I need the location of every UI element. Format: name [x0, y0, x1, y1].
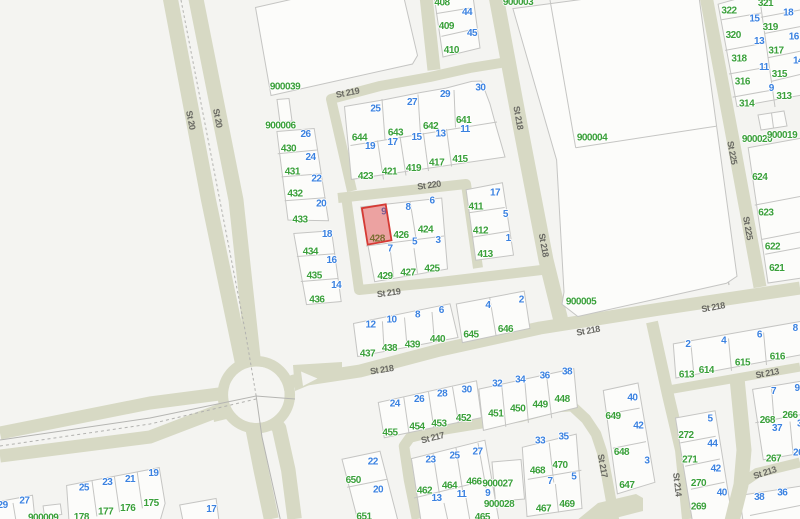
svg-text:11: 11: [759, 62, 770, 73]
svg-text:437: 437: [360, 349, 376, 360]
svg-text:40: 40: [627, 392, 638, 403]
svg-text:314: 314: [739, 99, 755, 110]
svg-text:18: 18: [783, 8, 794, 19]
svg-text:645: 645: [463, 330, 479, 341]
svg-text:25: 25: [79, 483, 90, 494]
svg-text:32: 32: [492, 379, 503, 390]
svg-text:175: 175: [144, 498, 160, 509]
svg-text:423: 423: [358, 171, 374, 182]
svg-text:21: 21: [125, 474, 136, 485]
svg-text:26: 26: [300, 129, 311, 140]
svg-text:320: 320: [726, 30, 742, 41]
svg-text:38: 38: [754, 492, 765, 503]
svg-text:23: 23: [425, 455, 436, 466]
svg-text:469: 469: [559, 499, 575, 510]
svg-text:26: 26: [793, 447, 800, 458]
svg-text:29: 29: [440, 89, 451, 100]
svg-text:35: 35: [558, 431, 569, 442]
svg-text:900003: 900003: [503, 0, 534, 8]
svg-text:450: 450: [510, 404, 526, 415]
svg-text:42: 42: [633, 421, 644, 432]
svg-text:42: 42: [711, 463, 722, 474]
svg-text:270: 270: [691, 478, 707, 489]
svg-text:621: 621: [769, 263, 785, 274]
svg-text:411: 411: [468, 201, 484, 212]
svg-text:27: 27: [19, 496, 30, 507]
svg-text:27: 27: [472, 446, 483, 457]
svg-text:322: 322: [721, 5, 737, 16]
svg-text:37: 37: [772, 423, 783, 434]
svg-text:900028: 900028: [484, 499, 515, 510]
svg-text:434: 434: [303, 246, 319, 257]
svg-text:415: 415: [452, 154, 468, 165]
svg-text:616: 616: [770, 352, 786, 363]
svg-text:448: 448: [555, 394, 571, 405]
svg-text:900039: 900039: [270, 82, 301, 93]
svg-text:34: 34: [515, 375, 526, 386]
svg-text:449: 449: [533, 399, 549, 410]
svg-text:20: 20: [373, 484, 384, 495]
svg-text:424: 424: [418, 225, 434, 236]
svg-text:178: 178: [74, 512, 90, 519]
svg-text:13: 13: [435, 129, 446, 140]
svg-text:455: 455: [382, 428, 398, 439]
svg-text:429: 429: [377, 271, 393, 282]
svg-text:176: 176: [120, 503, 136, 514]
svg-text:19: 19: [148, 468, 159, 479]
svg-text:16: 16: [789, 31, 800, 42]
svg-text:267: 267: [766, 453, 782, 464]
svg-text:646: 646: [498, 324, 514, 335]
svg-text:318: 318: [731, 53, 747, 64]
svg-text:10: 10: [386, 315, 397, 326]
svg-text:33: 33: [535, 436, 546, 447]
svg-text:900006: 900006: [265, 121, 296, 132]
svg-text:25: 25: [370, 104, 381, 115]
svg-text:22: 22: [311, 174, 322, 185]
svg-text:30: 30: [462, 385, 473, 396]
svg-text:313: 313: [776, 91, 792, 102]
svg-text:615: 615: [735, 357, 751, 368]
svg-text:36: 36: [540, 370, 551, 381]
svg-text:466: 466: [466, 477, 482, 488]
svg-text:44: 44: [462, 7, 473, 18]
svg-text:419: 419: [406, 163, 422, 174]
svg-text:28: 28: [437, 389, 448, 400]
svg-text:453: 453: [431, 418, 447, 429]
svg-text:14: 14: [331, 280, 342, 291]
svg-text:20: 20: [316, 198, 327, 209]
svg-text:431: 431: [285, 166, 301, 177]
svg-text:470: 470: [552, 460, 568, 471]
svg-text:315: 315: [772, 69, 788, 80]
svg-text:317: 317: [768, 45, 784, 56]
svg-text:440: 440: [430, 334, 446, 345]
svg-text:624: 624: [752, 172, 768, 183]
svg-text:22: 22: [368, 456, 379, 467]
svg-text:29: 29: [0, 500, 9, 511]
svg-text:23: 23: [102, 477, 113, 488]
svg-text:900004: 900004: [577, 133, 608, 144]
svg-text:613: 613: [679, 370, 695, 381]
svg-text:17: 17: [387, 137, 398, 148]
svg-text:12: 12: [365, 320, 376, 331]
svg-text:438: 438: [382, 343, 398, 354]
svg-text:622: 622: [765, 242, 781, 253]
svg-text:426: 426: [393, 230, 409, 241]
svg-text:468: 468: [530, 466, 546, 477]
svg-text:614: 614: [699, 365, 715, 376]
svg-text:272: 272: [678, 430, 694, 441]
svg-text:436: 436: [309, 294, 325, 305]
svg-text:36: 36: [777, 487, 788, 498]
svg-text:409: 409: [439, 21, 455, 32]
svg-text:408: 408: [434, 0, 450, 9]
svg-text:14: 14: [793, 55, 800, 66]
svg-text:321: 321: [758, 0, 774, 9]
svg-text:651: 651: [356, 512, 372, 519]
svg-text:439: 439: [405, 340, 421, 351]
svg-text:900009: 900009: [28, 513, 59, 519]
svg-text:19: 19: [365, 141, 376, 152]
svg-text:25: 25: [449, 451, 460, 462]
svg-text:452: 452: [456, 413, 472, 424]
svg-text:410: 410: [444, 45, 460, 56]
svg-text:11: 11: [457, 489, 468, 500]
svg-text:451: 451: [488, 408, 504, 419]
svg-text:432: 432: [287, 189, 303, 200]
svg-text:465: 465: [475, 512, 491, 519]
svg-text:413: 413: [478, 249, 494, 260]
svg-text:45: 45: [467, 28, 478, 39]
svg-text:647: 647: [619, 480, 635, 491]
svg-text:38: 38: [562, 366, 573, 377]
svg-text:421: 421: [382, 167, 398, 178]
svg-text:16: 16: [326, 255, 337, 266]
svg-text:9: 9: [794, 383, 800, 394]
svg-text:454: 454: [409, 422, 425, 433]
svg-text:464: 464: [442, 481, 458, 492]
svg-text:430: 430: [281, 143, 297, 154]
svg-text:13: 13: [431, 493, 442, 504]
svg-text:316: 316: [735, 77, 751, 88]
svg-text:623: 623: [758, 208, 774, 219]
svg-text:425: 425: [424, 263, 440, 274]
svg-text:24: 24: [305, 152, 316, 163]
svg-text:427: 427: [400, 268, 416, 279]
svg-text:13: 13: [754, 36, 765, 47]
svg-text:648: 648: [614, 447, 630, 458]
svg-text:11: 11: [460, 124, 471, 135]
svg-text:900019: 900019: [767, 130, 798, 141]
svg-text:269: 269: [691, 501, 707, 512]
svg-text:15: 15: [749, 14, 760, 25]
svg-text:24: 24: [390, 399, 401, 410]
svg-text:27: 27: [407, 97, 418, 108]
svg-text:17: 17: [206, 504, 217, 515]
svg-text:30: 30: [475, 83, 486, 94]
svg-text:26: 26: [414, 394, 425, 405]
svg-text:649: 649: [605, 411, 621, 422]
svg-text:17: 17: [490, 188, 501, 199]
svg-text:412: 412: [473, 225, 489, 236]
svg-text:44: 44: [707, 439, 718, 450]
svg-text:435: 435: [307, 271, 323, 282]
svg-text:467: 467: [536, 504, 552, 515]
svg-text:18: 18: [322, 229, 333, 240]
svg-text:417: 417: [429, 158, 445, 169]
svg-text:900005: 900005: [566, 297, 597, 308]
svg-text:15: 15: [411, 132, 422, 143]
svg-text:177: 177: [98, 507, 114, 518]
svg-text:319: 319: [763, 22, 779, 33]
svg-text:433: 433: [292, 214, 308, 225]
svg-text:271: 271: [682, 455, 698, 466]
svg-text:650: 650: [346, 475, 362, 486]
svg-text:40: 40: [717, 488, 728, 499]
